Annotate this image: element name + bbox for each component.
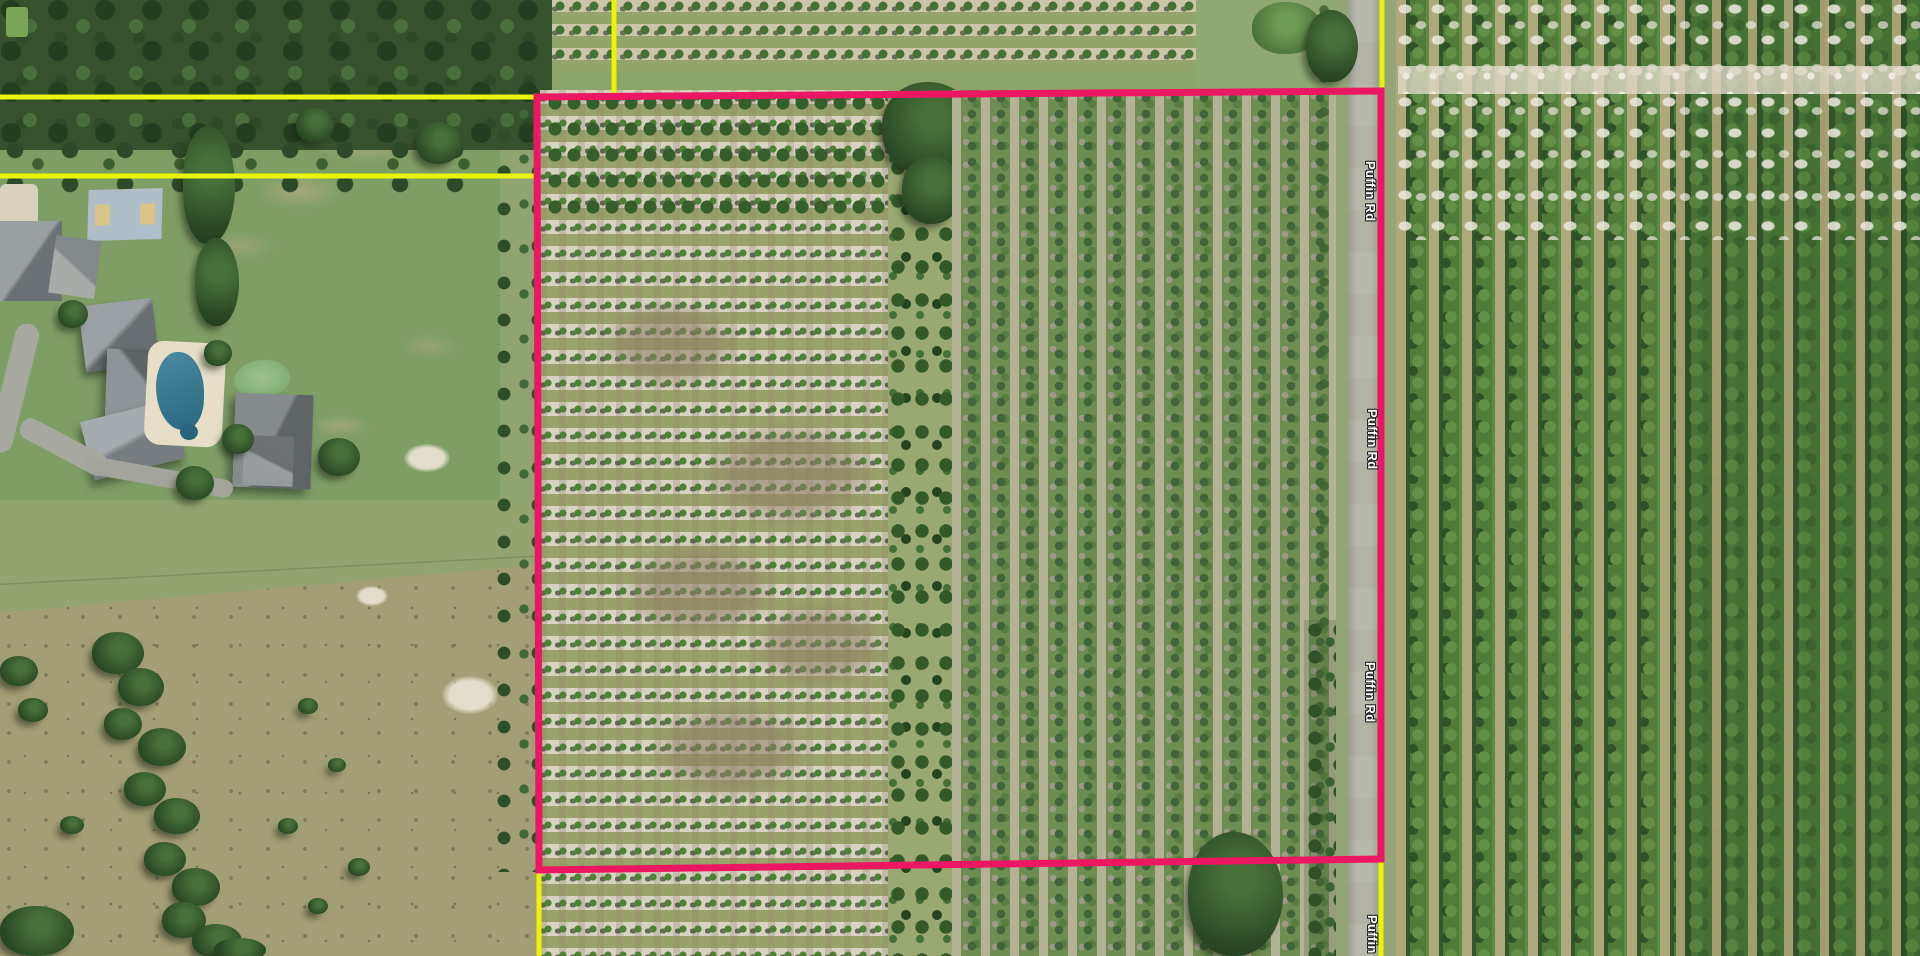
parcel-boundary-line xyxy=(537,91,1381,870)
aerial-map-view[interactable]: Puffin Rd Puffin Rd Puffin Rd Puffin Rd xyxy=(0,0,1920,956)
road-label: Puffin Rd xyxy=(1365,915,1380,956)
road-label: Puffin Rd xyxy=(1363,662,1378,722)
road-label: Puffin Rd xyxy=(1365,409,1380,469)
boundary-overlay xyxy=(0,0,1920,956)
road-label: Puffin Rd xyxy=(1363,161,1378,221)
